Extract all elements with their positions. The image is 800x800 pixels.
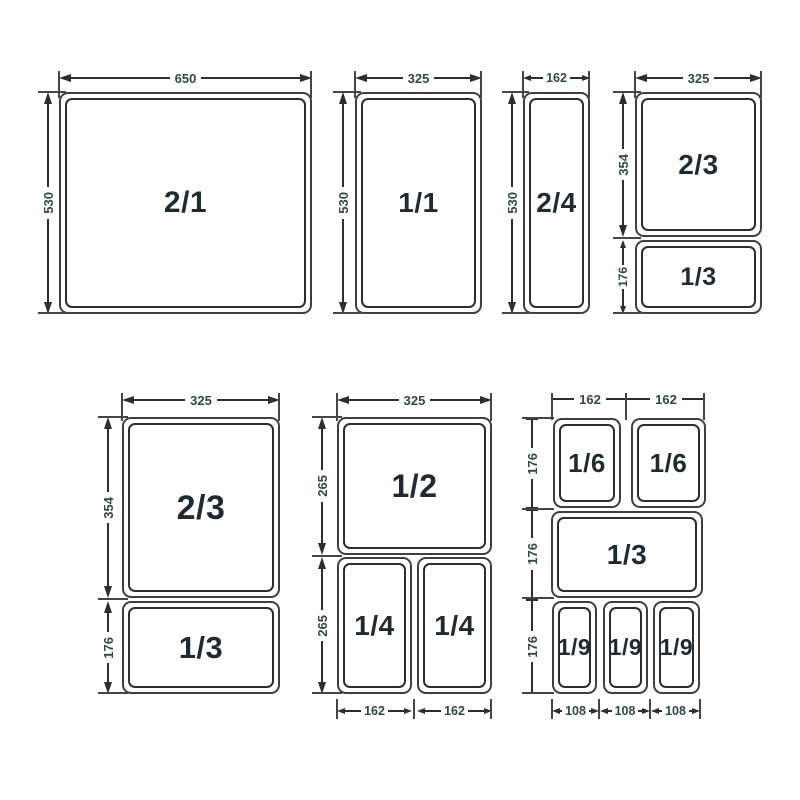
pan-size-label: 1/9 (609, 636, 642, 659)
dim-line (531, 662, 533, 692)
extension-line (699, 699, 701, 719)
dim-bottom-width-2: 108 (600, 703, 650, 719)
dim-bottom-width-1: 108 (552, 703, 599, 719)
dim-label: 176 (526, 448, 539, 480)
dim-label: 162 (574, 393, 606, 406)
dim-label: 176 (526, 538, 539, 570)
dim-left-height-2: 176 (524, 509, 540, 599)
gastronorm-size-diagram: 650 530 2/1 325 530 1/1 (0, 0, 800, 800)
pan-size-label: 1/9 (660, 636, 693, 659)
extension-line (522, 417, 554, 419)
pan-group-1-6-1-3-1-9: 162 162 176 176 176 (0, 0, 800, 800)
arrowhead-left-icon (600, 708, 608, 714)
arrowhead-left-icon (651, 708, 659, 714)
dim-label: 162 (650, 393, 682, 406)
dim-line (531, 420, 533, 448)
pan-size-label: 1/6 (650, 450, 688, 476)
dim-line (531, 511, 533, 538)
pan-size-label: 1/9 (558, 636, 591, 659)
pan-1-9: 1/9 (552, 601, 597, 694)
pan-1-9: 1/9 (653, 601, 700, 694)
pan-1-9: 1/9 (603, 601, 648, 694)
extension-line (522, 692, 554, 694)
dim-top-width-left: 162 (553, 391, 627, 407)
dim-top-width-right: 162 (627, 391, 705, 407)
extension-line (703, 393, 705, 420)
dim-label: 108 (612, 705, 639, 718)
pan-1-6: 1/6 (553, 418, 621, 508)
dim-bottom-width-3: 108 (651, 703, 700, 719)
extension-line (598, 699, 600, 719)
dim-label: 108 (562, 705, 589, 718)
extension-line (649, 699, 651, 719)
dim-line (627, 398, 650, 400)
extension-line (522, 597, 554, 599)
extension-line (625, 393, 627, 420)
pan-size-label: 1/3 (607, 541, 647, 569)
dim-left-height-1: 176 (524, 418, 540, 509)
arrowhead-left-icon (552, 708, 560, 714)
dim-line (531, 479, 533, 507)
dim-left-height-3: 176 (524, 599, 540, 694)
extension-line (551, 699, 553, 719)
dim-line (682, 398, 705, 400)
pan-1-3: 1/3 (551, 511, 703, 598)
extension-line (522, 508, 554, 510)
pan-1-6: 1/6 (631, 418, 706, 508)
dim-line (553, 398, 574, 400)
dim-label: 176 (526, 631, 539, 663)
dim-line (531, 601, 533, 631)
dim-line (606, 398, 627, 400)
pan-size-label: 1/6 (568, 450, 606, 476)
extension-line (551, 393, 553, 420)
dim-label: 108 (662, 705, 689, 718)
dim-line (531, 570, 533, 597)
